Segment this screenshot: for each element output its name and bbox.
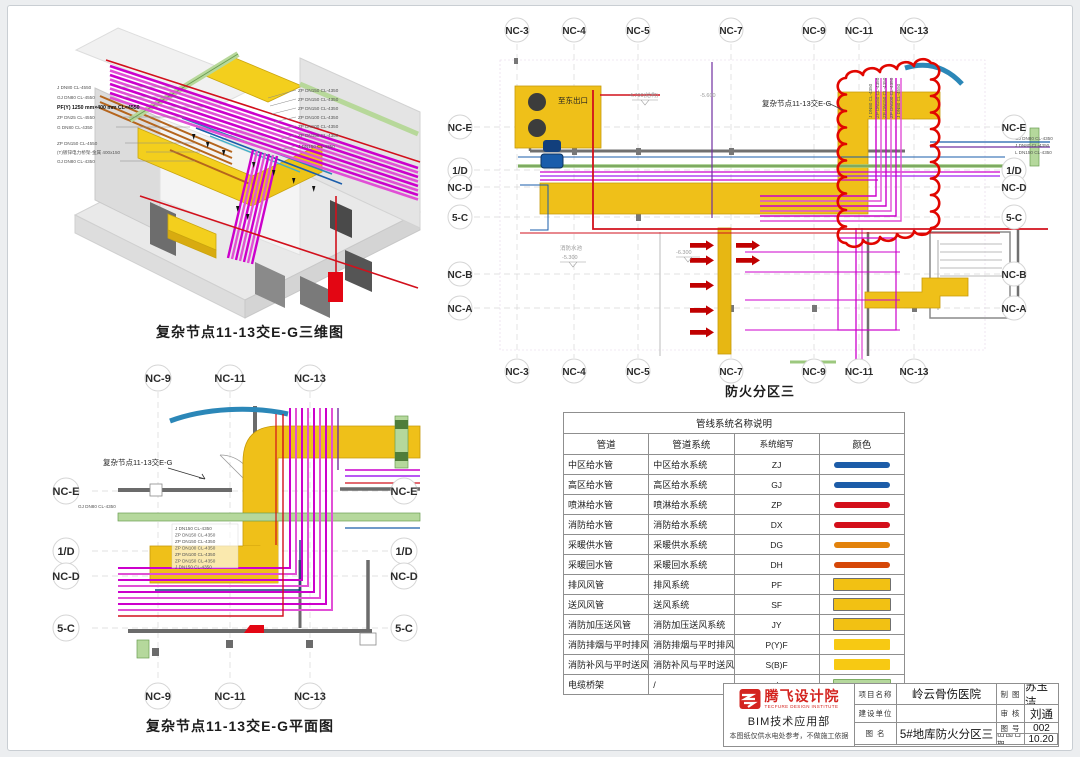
grid-label: NC-D	[52, 571, 80, 583]
grid-label: NC-7	[719, 367, 743, 378]
legend-row: 消防排烟与平时排风合用风管消防排烟与平时排风合用系统 P(Y)F	[564, 635, 905, 655]
legend-row: 高区给水管高区给水系统 GJ	[564, 475, 905, 495]
grid-label: NC-A	[1002, 304, 1027, 315]
grid-label: NC-13	[900, 26, 929, 37]
grid-label: 5-C	[395, 623, 413, 635]
drafter-label: 制 图	[997, 684, 1025, 705]
grid-label: NC-13	[294, 691, 326, 703]
legend-row: 排风风管排风系统 PF	[564, 575, 905, 595]
pipe-tag: ZP DN150 CL-4350	[298, 88, 339, 93]
issue-date-label: 出图日期	[997, 734, 1025, 745]
color-swatch	[834, 542, 890, 548]
exit-label: 至东出口	[558, 95, 588, 105]
drafter-value: 苏玉洁	[1025, 684, 1058, 705]
pipe-tag: J DN80 CL-4550	[57, 85, 92, 90]
plan-main-yellow-ducts	[515, 86, 968, 354]
pipe-tag: ZP DN150 CL-4350	[175, 559, 216, 564]
grid-label: NC-B	[448, 270, 473, 281]
pipe-tag: ZP DN100 CL-4350	[175, 552, 216, 557]
grid-label: NC-3	[505, 26, 529, 37]
grid-label: NC-9	[145, 691, 171, 703]
legend-row: 消防加压送风管消防加压送风系统 JY	[564, 615, 905, 635]
pipe-system-legend: 管线系统名称说明 管道 管道系统 系统缩写 颜色 中区给水管中区给水系统 ZJ …	[563, 412, 905, 695]
pipe-tag: ZP DN150 CL-4350	[298, 133, 339, 138]
grid-label: NC-11	[214, 373, 245, 385]
pipe-tag: ZP DN100 CL-4350	[298, 124, 339, 129]
legend-row: 采暖回水管采暖回水系统 DH	[564, 555, 905, 575]
grid-label: NC-5	[626, 367, 650, 378]
department-name: BIM技术应用部	[748, 713, 831, 729]
company-name-en: TECFURE DESIGN INSTITUTE	[765, 705, 840, 710]
grid-label: NC-5	[626, 26, 650, 37]
pipe-tag: ZP DN150 CL-4350	[175, 533, 216, 538]
pipe-tag: ZP DN150 CL-4350	[298, 97, 339, 102]
grid-label: NC-4	[562, 26, 586, 37]
pipe-tag: GJ DN80 CL-4350	[78, 504, 116, 509]
pipe-tag: GJ DN80 CL-4350	[57, 159, 95, 164]
pipe-tag: ZP DN25 CL-4550	[57, 115, 95, 120]
grid-label: 1/D	[57, 546, 74, 558]
node-label: 复杂节点11-13交E-G	[762, 98, 832, 108]
elevation-label: -5.600	[700, 93, 716, 99]
pipe-tag: J DN80 CL-4350	[868, 83, 873, 118]
pipe-tag: ZP DN150 CL-4350	[298, 106, 339, 111]
grid-label: 1/D	[1006, 166, 1022, 177]
grid-label: NC-E	[448, 123, 473, 134]
client-value	[897, 705, 997, 723]
grid-label: NC-E	[53, 486, 80, 498]
grid-label: 1/D	[395, 546, 412, 558]
color-swatch	[834, 562, 890, 568]
color-swatch	[833, 618, 891, 631]
grid-label: NC-E	[1002, 123, 1027, 134]
grid-label: 1/D	[452, 166, 468, 177]
grid-label: NC-D	[1002, 183, 1027, 194]
grid-label: NC-3	[505, 367, 529, 378]
pipe-tag: PF(Y) 1250 mm×400 mm CL=4550	[57, 105, 140, 111]
legend-header-color: 颜色	[819, 434, 904, 455]
grid-label: NC-13	[900, 367, 929, 378]
drawing-name-value: 5#地库防火分区三	[897, 723, 997, 745]
drawing-number-label: 图 号	[997, 723, 1025, 734]
pipe-tag: ZP DN150 CL-4350	[875, 77, 880, 118]
legend-title: 管线系统名称说明	[564, 413, 905, 434]
grid-label: NC-11	[845, 367, 874, 378]
grid-label: NC-9	[802, 367, 826, 378]
pipe-tag: ZP DN150 CL-4350	[175, 539, 216, 544]
legend-row: 消防给水管消防给水系统 DX	[564, 515, 905, 535]
color-swatch	[833, 578, 891, 591]
pipe-tag: (T)镀锌电力桥架-金属 400x150	[57, 149, 120, 156]
elevation-label: -4.700(结构)	[628, 91, 658, 99]
pipe-tag: J DN80 CL-4550	[896, 83, 901, 118]
grid-label: 5-C	[452, 213, 468, 224]
elevation-label: -6.300	[676, 250, 692, 256]
legend-row: 消防补风与平时送风合用风管消防补风与平时送风合用系统 S(B)F	[564, 655, 905, 675]
checker-label: 审 核	[997, 705, 1025, 723]
color-swatch	[834, 482, 890, 488]
color-swatch	[834, 522, 890, 528]
grid-label: NC-13	[294, 373, 326, 385]
legend-row: 喷淋给水管喷淋给水系统 ZP	[564, 495, 905, 515]
pool-elev: -5.300	[562, 255, 578, 261]
checker-value: 刘通	[1025, 705, 1058, 723]
plan-main-caption: 防火分区三	[650, 381, 870, 400]
pipe-tag: GJ DN80 CL-4550	[57, 95, 95, 100]
legend-row: 采暖供水管采暖供水系统 DG	[564, 535, 905, 555]
grid-label: NC-7	[719, 26, 743, 37]
grid-label: NC-11	[845, 26, 874, 37]
iso-fire-hydrant	[328, 272, 343, 302]
grid-label: 5-C	[57, 623, 75, 635]
pipe-tag: ZP DN100 CL-4350	[175, 546, 216, 551]
plan-node-caption: 复杂节点11-13交E-G平面图	[95, 716, 385, 736]
pipe-tag: ZP DN100 CL-4350	[889, 77, 894, 118]
pipe-tag: J DN80 CL-4350	[1015, 143, 1050, 148]
legend-header-system: 管道系统	[649, 434, 734, 455]
grid-label: NC-9	[145, 373, 171, 385]
legend-header-abbr: 系统缩写	[734, 434, 819, 455]
grid-label: NC-E	[391, 486, 418, 498]
grid-label: NC-B	[1002, 270, 1027, 281]
pipe-tag: ZP DN150 CL-4550	[57, 141, 98, 146]
grid-label: NC-D	[448, 183, 473, 194]
iso-caption: 复杂节点11-13交E-G三维图	[120, 322, 380, 342]
company-name: 腾飞设计院	[765, 689, 840, 703]
pipe-tag: L DN150 CL-4350	[1015, 150, 1052, 155]
client-label: 建设单位	[855, 705, 897, 723]
iso-view: J DN80 CL-4550 GJ DN80 CL-4550 PF(Y) 125…	[55, 8, 435, 348]
grid-label: NC-D	[390, 571, 418, 583]
plan-node: J DN150 CL-4350 ZP DN150 CL-4350 ZP DN15…	[38, 358, 440, 713]
pipe-tag: G DN80 CL-4350	[57, 125, 93, 130]
drawing-sheet: J DN80 CL-4550 GJ DN80 CL-4550 PF(Y) 125…	[0, 0, 1080, 757]
project-label: 项目名称	[855, 684, 897, 705]
issue-date-value: 10.20	[1025, 734, 1058, 745]
grid-label: NC-4	[562, 367, 586, 378]
color-swatch	[834, 639, 890, 650]
pipe-tag: ZP DN150 CL-4350	[882, 77, 887, 118]
color-swatch	[834, 502, 890, 508]
title-block: 腾飞设计院 TECFURE DESIGN INSTITUTE BIM技术应用部 …	[723, 683, 1059, 747]
color-swatch	[834, 462, 890, 468]
project-value: 岭云骨伤医院	[897, 684, 997, 705]
company-logo-icon	[739, 688, 761, 710]
grid-label: 5-C	[1006, 213, 1022, 224]
pipe-tag: ZP DN100 CL-4350	[298, 115, 339, 120]
title-block-logo-cell: 腾飞设计院 TECFURE DESIGN INSTITUTE BIM技术应用部 …	[724, 684, 855, 746]
drawing-name-label: 图 名	[855, 723, 897, 745]
color-swatch	[834, 659, 890, 670]
pipe-tag: J DN150 CL-4350	[298, 144, 335, 149]
title-block-fields: 项目名称 岭云骨伤医院 制 图 苏玉洁 建设单位 审 核 刘通 图 名 5#地库…	[855, 684, 1058, 746]
plan-main: 至东出口 复杂节点11-13交E-G -4.700(结构) -5.600 消防水…	[445, 12, 1060, 404]
legend-row: 中区给水管中区给水系统 ZJ	[564, 455, 905, 475]
color-swatch	[833, 598, 891, 611]
pipe-tag: J DN150 CL-4350	[175, 565, 212, 570]
legend-row: 送风风管送风系统 SF	[564, 595, 905, 615]
pool-label: 消防水池	[560, 244, 583, 252]
legend-header-pipe: 管道	[564, 434, 649, 455]
plan-main-cable-tray	[518, 128, 1039, 362]
disclaimer-note: 本图纸仅供水电处参考，不做施工依据	[730, 731, 849, 741]
drawing-number-value: 002	[1025, 723, 1058, 734]
grid-label: NC-9	[802, 26, 826, 37]
grid-label: NC-A	[448, 304, 473, 315]
pipe-tag: J DN150 CL-4350	[175, 526, 212, 531]
node-label: 复杂节点11-13交E-G	[103, 457, 173, 467]
grid-label: NC-11	[214, 691, 245, 703]
